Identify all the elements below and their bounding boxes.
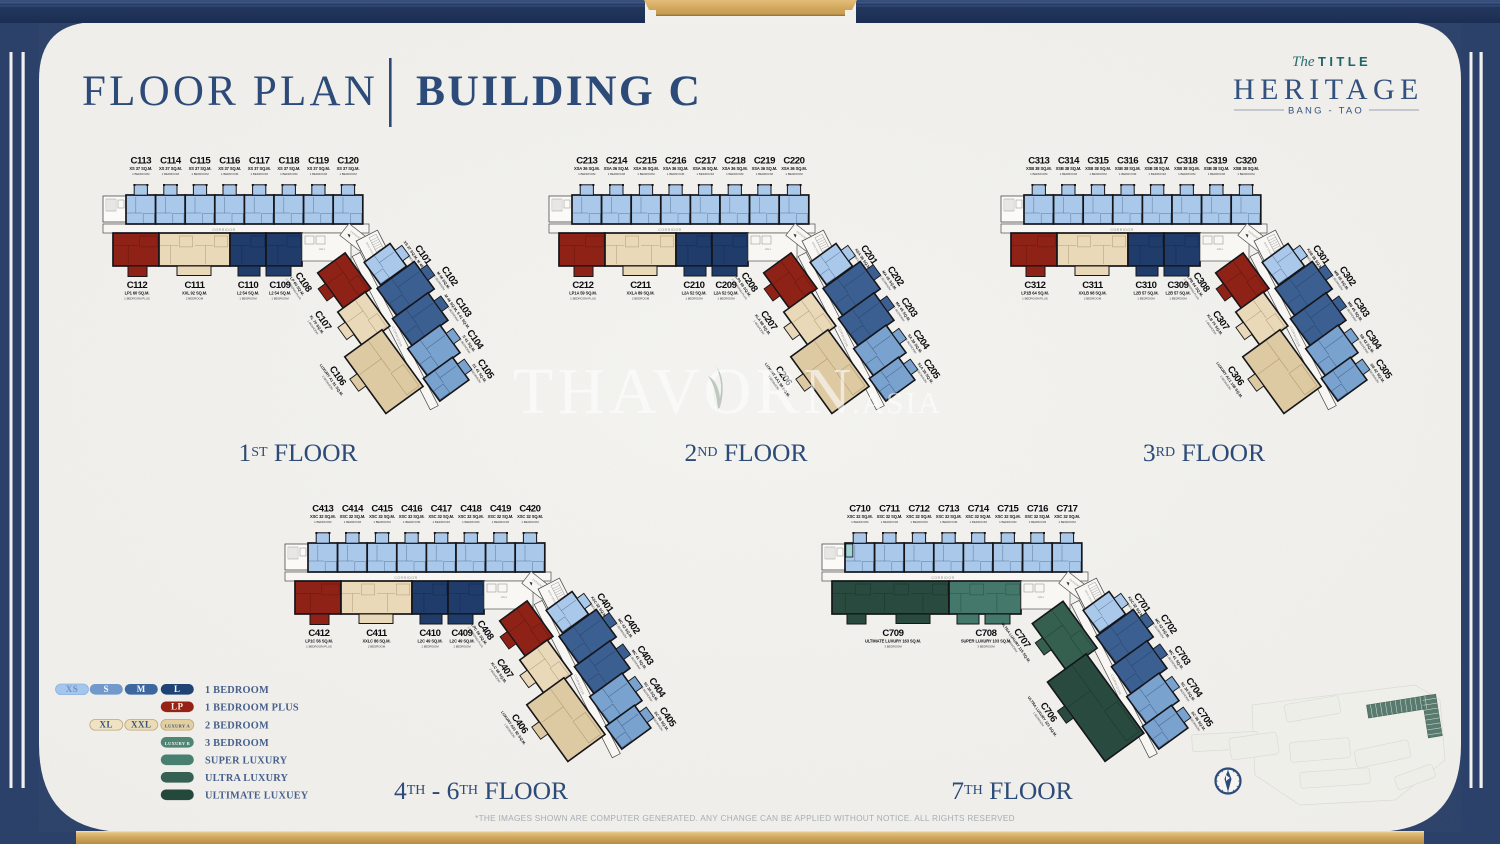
svg-text:1 BEDROOM: 1 BEDROOM	[1178, 172, 1196, 176]
svg-text:M: M	[137, 684, 146, 694]
svg-text:XXLA 89 SQ.M.: XXLA 89 SQ.M.	[627, 290, 655, 295]
svg-text:XSC 32 SQ.M.: XSC 32 SQ.M.	[517, 514, 543, 519]
svg-text:XS 37 SQ.M.: XS 37 SQ.M.	[337, 166, 360, 171]
svg-text:XSC 32 SQ.M.: XSC 32 SQ.M.	[340, 514, 366, 519]
svg-text:1 BEDROOM: 1 BEDROOM	[1208, 172, 1226, 176]
svg-text:XSC 32 SQ.M.: XSC 32 SQ.M.	[399, 514, 425, 519]
svg-text:2 BEDROOM: 2 BEDROOM	[186, 296, 204, 300]
svg-text:1 BEDROOM PLUS: 1 BEDROOM PLUS	[124, 296, 150, 300]
svg-text:1 BEDROOM: 1 BEDROOM	[421, 644, 439, 648]
svg-text:XSA 36 SQ.M.: XSA 36 SQ.M.	[781, 166, 807, 171]
svg-text:1 BEDROOM: 1 BEDROOM	[999, 520, 1017, 524]
svg-text:XSB 38 SQ.M.: XSB 38 SQ.M.	[1115, 166, 1141, 171]
svg-text:LP: LP	[171, 702, 184, 712]
svg-text:XSA 36 SQ.M.: XSA 36 SQ.M.	[663, 166, 689, 171]
svg-text:L2B 57 SQ.M.: L2B 57 SQ.M.	[1166, 290, 1191, 295]
svg-text:1 BEDROOM: 1 BEDROOM	[492, 520, 510, 524]
svg-text:1 BEDROOM: 1 BEDROOM	[239, 296, 257, 300]
svg-text:XSA 36 SQ.M.: XSA 36 SQ.M.	[752, 166, 778, 171]
svg-text:XSA 36 SQ.M.: XSA 36 SQ.M.	[574, 166, 600, 171]
svg-text:1 BEDROOM: 1 BEDROOM	[637, 172, 655, 176]
svg-text:XSB 38 SQ.M.: XSB 38 SQ.M.	[1026, 166, 1052, 171]
svg-text:1 BEDROOM: 1 BEDROOM	[403, 520, 421, 524]
svg-text:CORRIDOR: CORRIDOR	[1110, 228, 1133, 232]
svg-text:1 BEDROOM: 1 BEDROOM	[314, 520, 332, 524]
svg-text:1 BEDROOM: 1 BEDROOM	[717, 296, 735, 300]
svg-text:XS 37 SQ.M.: XS 37 SQ.M.	[189, 166, 212, 171]
svg-text:HALL: HALL	[1217, 247, 1224, 251]
svg-text:1 BEDROOM: 1 BEDROOM	[344, 520, 362, 524]
svg-text:L: L	[174, 684, 181, 694]
svg-text:LP1A 59 SQ.M.: LP1A 59 SQ.M.	[569, 290, 596, 295]
svg-text:XXLB 98 SQ.M.: XXLB 98 SQ.M.	[1078, 290, 1106, 295]
svg-text:1 BEDROOM: 1 BEDROOM	[910, 520, 928, 524]
svg-text:2 BEDROOM: 2 BEDROOM	[1084, 296, 1102, 300]
svg-text:1 BEDROOM: 1 BEDROOM	[608, 172, 626, 176]
svg-text:XSA 36 SQ.M.: XSA 36 SQ.M.	[692, 166, 718, 171]
svg-text:XSB 38 SQ.M.: XSB 38 SQ.M.	[1056, 166, 1082, 171]
svg-text:HALL: HALL	[765, 247, 772, 251]
svg-text:1 BEDROOM PLUS: 1 BEDROOM PLUS	[570, 296, 596, 300]
svg-text:3 BEDROOM: 3 BEDROOM	[884, 644, 902, 648]
svg-text:ULTIMATE LUXURY 163 SQ.M.: ULTIMATE LUXURY 163 SQ.M.	[865, 638, 921, 643]
svg-text:1 BEDROOM: 1 BEDROOM	[785, 172, 803, 176]
svg-text:XSC 32 SQ.M.: XSC 32 SQ.M.	[428, 514, 454, 519]
svg-text:XS 37 SQ.M.: XS 37 SQ.M.	[218, 166, 241, 171]
svg-text:XSC 32 SQ.M.: XSC 32 SQ.M.	[906, 514, 932, 519]
svg-text:HALL: HALL	[319, 247, 326, 251]
svg-text:1 BEDROOM: 1 BEDROOM	[373, 520, 391, 524]
svg-text:1 BEDROOM PLUS: 1 BEDROOM PLUS	[306, 644, 332, 648]
svg-text:2 BEDROOM: 2 BEDROOM	[632, 296, 650, 300]
svg-text:*THE IMAGES SHOWN ARE COMPUTER: *THE IMAGES SHOWN ARE COMPUTER GENERATED…	[475, 813, 1015, 823]
svg-text:1 BEDROOM: 1 BEDROOM	[667, 172, 685, 176]
svg-text:The: The	[1292, 54, 1315, 70]
svg-text:2 BEDROOM: 2 BEDROOM	[205, 721, 269, 732]
svg-text:XSA 36 SQ.M.: XSA 36 SQ.M.	[604, 166, 630, 171]
svg-text:1 BEDROOM: 1 BEDROOM	[1119, 172, 1137, 176]
svg-text:XSB 38 SQ.M.: XSB 38 SQ.M.	[1085, 166, 1111, 171]
svg-text:XSC 32 SQ.M.: XSC 32 SQ.M.	[310, 514, 336, 519]
svg-text:1 BEDROOM: 1 BEDROOM	[191, 172, 209, 176]
svg-text:ULTRA LUXURY: ULTRA LUXURY	[205, 773, 289, 784]
svg-text:1 BEDROOM: 1 BEDROOM	[251, 172, 269, 176]
svg-text:SUPER LUXURY 103 SQ.M.: SUPER LUXURY 103 SQ.M.	[961, 638, 1011, 643]
svg-text:1 BEDROOM: 1 BEDROOM	[453, 644, 471, 648]
svg-text:SUPER LUXURY: SUPER LUXURY	[205, 756, 288, 767]
svg-text:1 BEDROOM: 1 BEDROOM	[578, 172, 596, 176]
svg-text:HERITAGE: HERITAGE	[1233, 73, 1424, 106]
svg-text:CORRIDOR: CORRIDOR	[658, 228, 681, 232]
svg-text:1 BEDROOM: 1 BEDROOM	[280, 172, 298, 176]
svg-text:1 BEDROOM: 1 BEDROOM	[1060, 172, 1078, 176]
svg-text:TITLE: TITLE	[1318, 54, 1371, 69]
svg-text:CORRIDOR: CORRIDOR	[394, 576, 417, 580]
svg-text:1 BEDROOM: 1 BEDROOM	[162, 172, 180, 176]
svg-text:1 BEDROOM: 1 BEDROOM	[726, 172, 744, 176]
svg-text:1 BEDROOM: 1 BEDROOM	[462, 520, 480, 524]
svg-text:1 BEDROOM PLUS: 1 BEDROOM PLUS	[205, 703, 299, 714]
svg-text:1 BEDROOM: 1 BEDROOM	[1089, 172, 1107, 176]
svg-text:1 BEDROOM: 1 BEDROOM	[851, 520, 869, 524]
svg-text:LUXURY A: LUXURY A	[165, 724, 191, 729]
svg-text:LUXURY B: LUXURY B	[165, 741, 190, 746]
svg-text:1 BEDROOM: 1 BEDROOM	[970, 520, 988, 524]
svg-text:CORRIDOR: CORRIDOR	[931, 576, 954, 580]
svg-text:BANG - TAO: BANG - TAO	[1288, 106, 1364, 117]
svg-text:1 BEDROOM PLUS: 1 BEDROOM PLUS	[1022, 296, 1048, 300]
svg-text:CORRIDOR: CORRIDOR	[212, 228, 235, 232]
svg-text:L2C 49 SQ.M.: L2C 49 SQ.M.	[418, 638, 443, 643]
svg-text:FLOOR PLAN: FLOOR PLAN	[82, 68, 378, 115]
svg-text:1 BEDROOM: 1 BEDROOM	[521, 520, 539, 524]
svg-text:1 BEDROOM: 1 BEDROOM	[132, 172, 150, 176]
svg-text:XS 37 SQ.M.: XS 37 SQ.M.	[159, 166, 182, 171]
svg-text:XXLC 86 SQ.M.: XXLC 86 SQ.M.	[362, 638, 390, 643]
svg-text:1 BEDROOM: 1 BEDROOM	[221, 172, 239, 176]
svg-text:XS 37 SQ.M.: XS 37 SQ.M.	[129, 166, 152, 171]
svg-text:S: S	[104, 684, 110, 694]
svg-text:XSC 32 SQ.M.: XSC 32 SQ.M.	[995, 514, 1021, 519]
svg-text:HALL: HALL	[501, 595, 508, 599]
svg-text:LP1 60 SQ.M.: LP1 60 SQ.M.	[125, 290, 150, 295]
svg-text:XSC 32 SQ.M.: XSC 32 SQ.M.	[877, 514, 903, 519]
svg-text:1 BEDROOM: 1 BEDROOM	[1237, 172, 1255, 176]
svg-text:XSC 32 SQ.M.: XSC 32 SQ.M.	[369, 514, 395, 519]
svg-text:XSB 38 SQ.M.: XSB 38 SQ.M.	[1144, 166, 1170, 171]
svg-text:XSC 32 SQ.M.: XSC 32 SQ.M.	[965, 514, 991, 519]
svg-text:XSC 32 SQ.M.: XSC 32 SQ.M.	[458, 514, 484, 519]
svg-text:XSC 32 SQ.M.: XSC 32 SQ.M.	[1054, 514, 1080, 519]
svg-text:1 BEDROOM: 1 BEDROOM	[1169, 296, 1187, 300]
svg-text:L2 54 SQ.M.: L2 54 SQ.M.	[237, 290, 259, 295]
svg-text:XXL 92 SQ.M.: XXL 92 SQ.M.	[182, 290, 207, 295]
svg-text:XSC 32 SQ.M.: XSC 32 SQ.M.	[1025, 514, 1051, 519]
svg-text:XSA 36 SQ.M.: XSA 36 SQ.M.	[633, 166, 659, 171]
svg-text:XSC 32 SQ.M.: XSC 32 SQ.M.	[488, 514, 514, 519]
svg-text:.ASIA: .ASIA	[852, 385, 942, 420]
svg-text:L2B 57 SQ.M.: L2B 57 SQ.M.	[1134, 290, 1159, 295]
svg-text:1 BEDROOM: 1 BEDROOM	[339, 172, 357, 176]
svg-text:1 BEDROOM: 1 BEDROOM	[310, 172, 328, 176]
svg-text:L2C 49 SQ.M.: L2C 49 SQ.M.	[450, 638, 475, 643]
svg-text:1 BEDROOM: 1 BEDROOM	[756, 172, 774, 176]
svg-text:1 BEDROOM: 1 BEDROOM	[433, 520, 451, 524]
svg-text:3 BEDROOM: 3 BEDROOM	[977, 644, 995, 648]
svg-text:1 BEDROOM: 1 BEDROOM	[881, 520, 899, 524]
svg-text:LP1B 64 SQ.M.: LP1B 64 SQ.M.	[1021, 290, 1049, 295]
svg-text:1 BEDROOM: 1 BEDROOM	[271, 296, 289, 300]
svg-text:L2A 52 SQ.M.: L2A 52 SQ.M.	[682, 290, 707, 295]
svg-text:2 BEDROOM: 2 BEDROOM	[368, 644, 386, 648]
svg-text:1 BEDROOM: 1 BEDROOM	[1058, 520, 1076, 524]
svg-text:XSC 32 SQ.M.: XSC 32 SQ.M.	[847, 514, 873, 519]
svg-text:1 BEDROOM: 1 BEDROOM	[940, 520, 958, 524]
svg-text:XS 37 SQ.M.: XS 37 SQ.M.	[277, 166, 300, 171]
svg-text:LP1C 56 SQ.M.: LP1C 56 SQ.M.	[305, 638, 333, 643]
svg-text:XSB 38 SQ.M.: XSB 38 SQ.M.	[1174, 166, 1200, 171]
svg-text:1 BEDROOM: 1 BEDROOM	[1030, 172, 1048, 176]
svg-text:XXL: XXL	[131, 720, 152, 730]
svg-text:XS 37 SQ.M.: XS 37 SQ.M.	[248, 166, 271, 171]
svg-text:1 BEDROOM: 1 BEDROOM	[1149, 172, 1167, 176]
svg-text:1 BEDROOM: 1 BEDROOM	[1029, 520, 1047, 524]
svg-text:1 BEDROOM: 1 BEDROOM	[685, 296, 703, 300]
svg-text:XSA 36 SQ.M.: XSA 36 SQ.M.	[722, 166, 748, 171]
svg-text:XS: XS	[66, 684, 79, 694]
svg-text:L2A 52 SQ.M.: L2A 52 SQ.M.	[714, 290, 739, 295]
svg-text:HALL: HALL	[1038, 595, 1045, 599]
svg-text:THAVORN: THAVORN	[513, 355, 855, 428]
svg-text:ULTIMATE LUXUEY: ULTIMATE LUXUEY	[205, 791, 309, 802]
svg-text:XSB 38 SQ.M.: XSB 38 SQ.M.	[1233, 166, 1259, 171]
svg-text:1 BEDROOM: 1 BEDROOM	[205, 685, 269, 696]
svg-text:XL: XL	[100, 720, 114, 730]
svg-text:BUILDING C: BUILDING C	[416, 67, 702, 115]
svg-text:1 BEDROOM: 1 BEDROOM	[1137, 296, 1155, 300]
svg-text:XSC 32 SQ.M.: XSC 32 SQ.M.	[936, 514, 962, 519]
svg-text:L2 54 SQ.M.: L2 54 SQ.M.	[269, 290, 291, 295]
svg-text:XS 37 SQ.M.: XS 37 SQ.M.	[307, 166, 330, 171]
svg-text:3 BEDROOM: 3 BEDROOM	[205, 738, 269, 749]
svg-text:1 BEDROOM: 1 BEDROOM	[697, 172, 715, 176]
svg-text:XSB 38 SQ.M.: XSB 38 SQ.M.	[1204, 166, 1230, 171]
